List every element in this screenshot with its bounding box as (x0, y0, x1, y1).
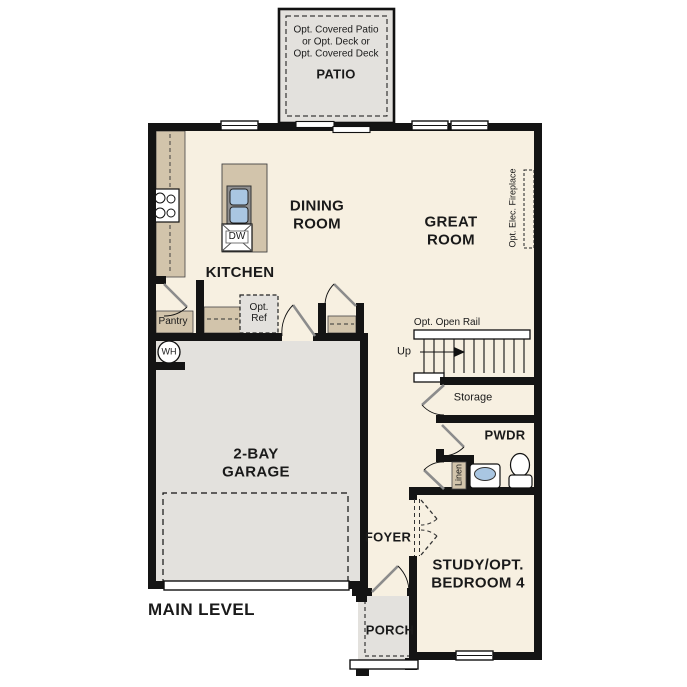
room-label-dining: DININGROOM (290, 197, 344, 232)
room-label-porch: PORCH (366, 622, 414, 637)
room-label-foyer: FOYER (365, 529, 411, 544)
water-heater-label: WH (162, 347, 177, 358)
toilet-tank (509, 475, 532, 488)
sink-basin (230, 189, 248, 205)
stair-top-rail (414, 330, 530, 339)
sink-bowl (475, 468, 496, 481)
room-label-patio: PATIO (316, 66, 355, 81)
toilet-bowl (511, 454, 530, 477)
room-label-pantry: Pantry (159, 316, 188, 328)
sliding-door-panel (333, 127, 370, 133)
garage-door-opening (164, 581, 349, 590)
room-label-linen: Linen (454, 464, 465, 486)
page-title: MAIN LEVEL (148, 600, 255, 620)
room-label-garage: 2-BAYGARAGE (222, 445, 290, 480)
fireplace-note: Opt. Elec. Fireplace (508, 168, 519, 247)
mud-counter (204, 307, 241, 333)
open-rail-note: Opt. Open Rail (414, 317, 480, 329)
patio-note: Opt. Covered Patio or Opt. Deck or Opt. … (293, 24, 378, 59)
sliding-door-panel (296, 122, 334, 128)
floor-plan-drawing (0, 0, 687, 687)
room-label-great-room: GREATROOM (425, 213, 478, 248)
porch-step (350, 660, 418, 669)
floor-plan: Opt. Covered Patio or Opt. Deck or Opt. … (0, 0, 687, 687)
stair-bottom-rail (414, 373, 444, 382)
room-label-storage: Storage (454, 392, 493, 405)
porch-post (356, 592, 367, 602)
up-note: Up (397, 346, 411, 359)
coat-closet-shelf (328, 316, 356, 333)
room-label-kitchen: KITCHEN (206, 264, 275, 282)
room-label-study: STUDY/OPT.BEDROOM 4 (431, 556, 525, 591)
optional-ref-note: Opt.Ref (250, 302, 269, 324)
sink-basin (230, 207, 248, 223)
room-label-pwdr: PWDR (485, 427, 526, 442)
dishwasher-label: DW (229, 231, 246, 243)
